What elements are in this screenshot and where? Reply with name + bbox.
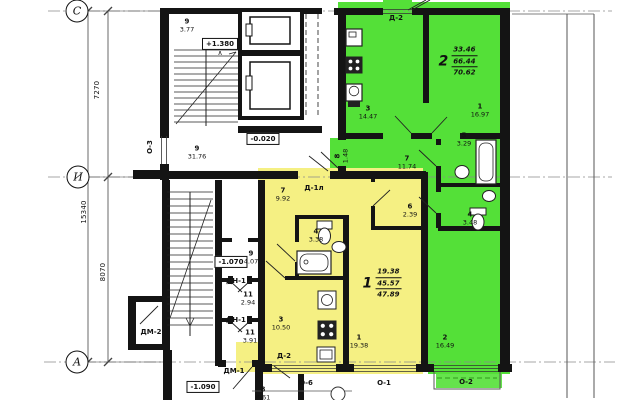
- dimension-value: 7270: [93, 81, 101, 100]
- dimension-value: 15340: [80, 200, 88, 223]
- axis-marker: И: [67, 166, 90, 189]
- door-label: ДН-1: [226, 316, 246, 324]
- window-label: О-2: [459, 378, 473, 386]
- axis-marker: А: [66, 351, 89, 374]
- elevation-mark: -1.090: [186, 381, 219, 393]
- door-label: ДМ-1: [224, 367, 245, 375]
- room-label: 62.39: [403, 204, 417, 219]
- door-label: Д-1л: [304, 184, 323, 192]
- room-label: 314.47: [359, 106, 378, 121]
- apartment-summary: 119.3845.5747.89: [363, 266, 402, 300]
- room-label: 79.92: [276, 188, 290, 203]
- floor-plan: СИА7270153408070+1.380∧-0.020-1.070-1.09…: [0, 0, 640, 400]
- room-label: 216.49: [436, 335, 455, 350]
- door-label: Д-2: [389, 14, 403, 22]
- elevation-arrow-icon: ∧: [217, 50, 222, 57]
- axis-marker: С: [66, 0, 89, 23]
- door-label: Д-2: [277, 352, 291, 360]
- window-label: О-6: [299, 379, 313, 387]
- window-label: О-3: [146, 140, 154, 154]
- room-label: 43.38: [309, 229, 323, 244]
- window-label: О-1: [377, 379, 391, 387]
- elevation-mark: -1.070: [214, 256, 247, 268]
- apartment-summary: 233.4666.4470.62: [439, 44, 478, 78]
- room-label: 119.38: [350, 335, 369, 350]
- room-label: 113.91: [243, 330, 257, 345]
- room-label: 53.29: [457, 133, 471, 148]
- room-label: 711.74: [398, 156, 417, 171]
- room-label: 116.97: [471, 104, 490, 119]
- room-label: 93.77: [180, 19, 194, 34]
- elevation-mark: -0.020: [246, 133, 279, 145]
- door-label: ДМ-2: [141, 328, 162, 336]
- room-label: 931.76: [188, 146, 207, 161]
- dimension-value: 8070: [99, 263, 107, 282]
- room-label: 94.07: [244, 251, 258, 266]
- room-label: 112.94: [241, 292, 255, 307]
- room-label: 81.48: [335, 149, 350, 163]
- door-label: ДН-1: [226, 277, 246, 285]
- room-label: 43.48: [463, 212, 477, 227]
- plan-labels: СИА7270153408070+1.380∧-0.020-1.070-1.09…: [0, 0, 640, 400]
- room-label: 310.50: [272, 317, 291, 332]
- room-label: 86.61: [256, 387, 270, 400]
